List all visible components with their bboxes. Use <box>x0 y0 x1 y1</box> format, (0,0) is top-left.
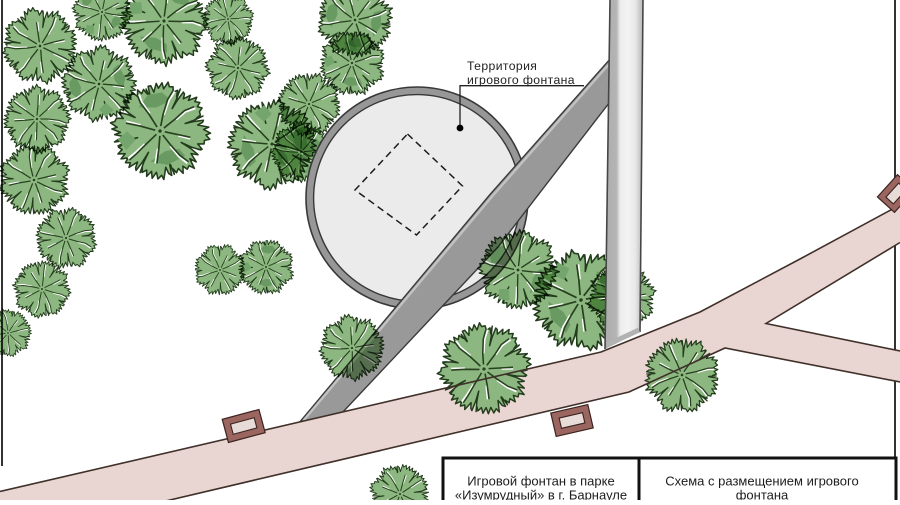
svg-text:фонтана: фонтана <box>736 488 789 501</box>
svg-text:Территория: Территория <box>467 59 537 73</box>
svg-text:Схема с размещением игрового: Схема с размещением игрового <box>665 474 858 489</box>
svg-text:«Изумрудный» в г. Барнауле: «Изумрудный» в г. Барнауле <box>455 488 627 501</box>
svg-text:игрового фонтана: игрового фонтана <box>467 73 575 87</box>
svg-text:Игровой фонтан в парке: Игровой фонтан в парке <box>467 474 614 489</box>
